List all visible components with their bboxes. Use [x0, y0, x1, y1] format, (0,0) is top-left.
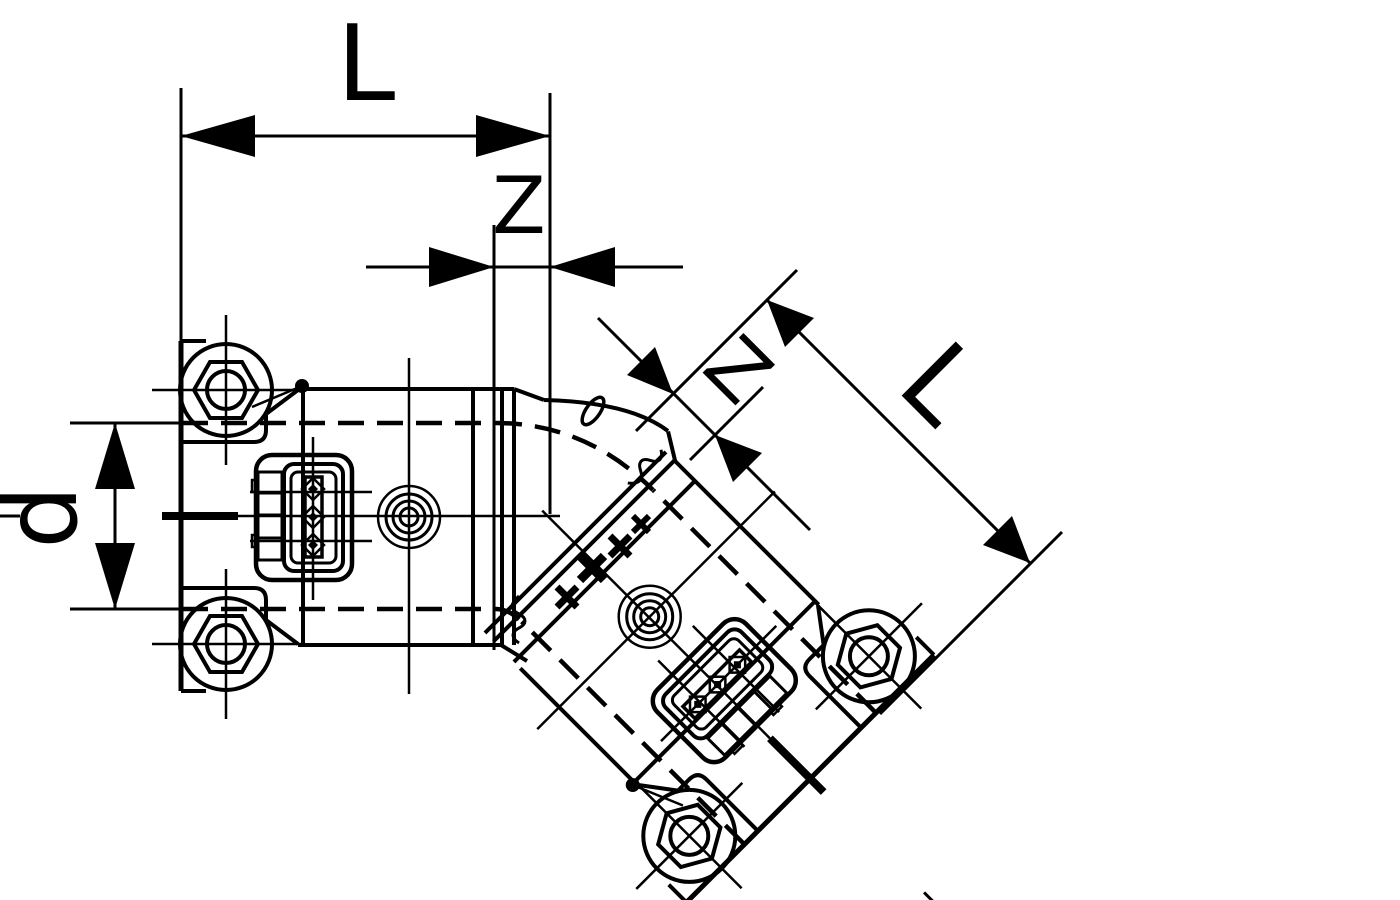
label-bore-diameter: d	[0, 485, 100, 548]
elbow-fitting-drawing: L Z d Z L	[0, 0, 1400, 900]
label-length-horizontal: L	[337, 3, 396, 125]
label-offset-horizontal: Z	[492, 162, 545, 252]
drawing-canvas: L Z d Z L	[0, 0, 1400, 900]
